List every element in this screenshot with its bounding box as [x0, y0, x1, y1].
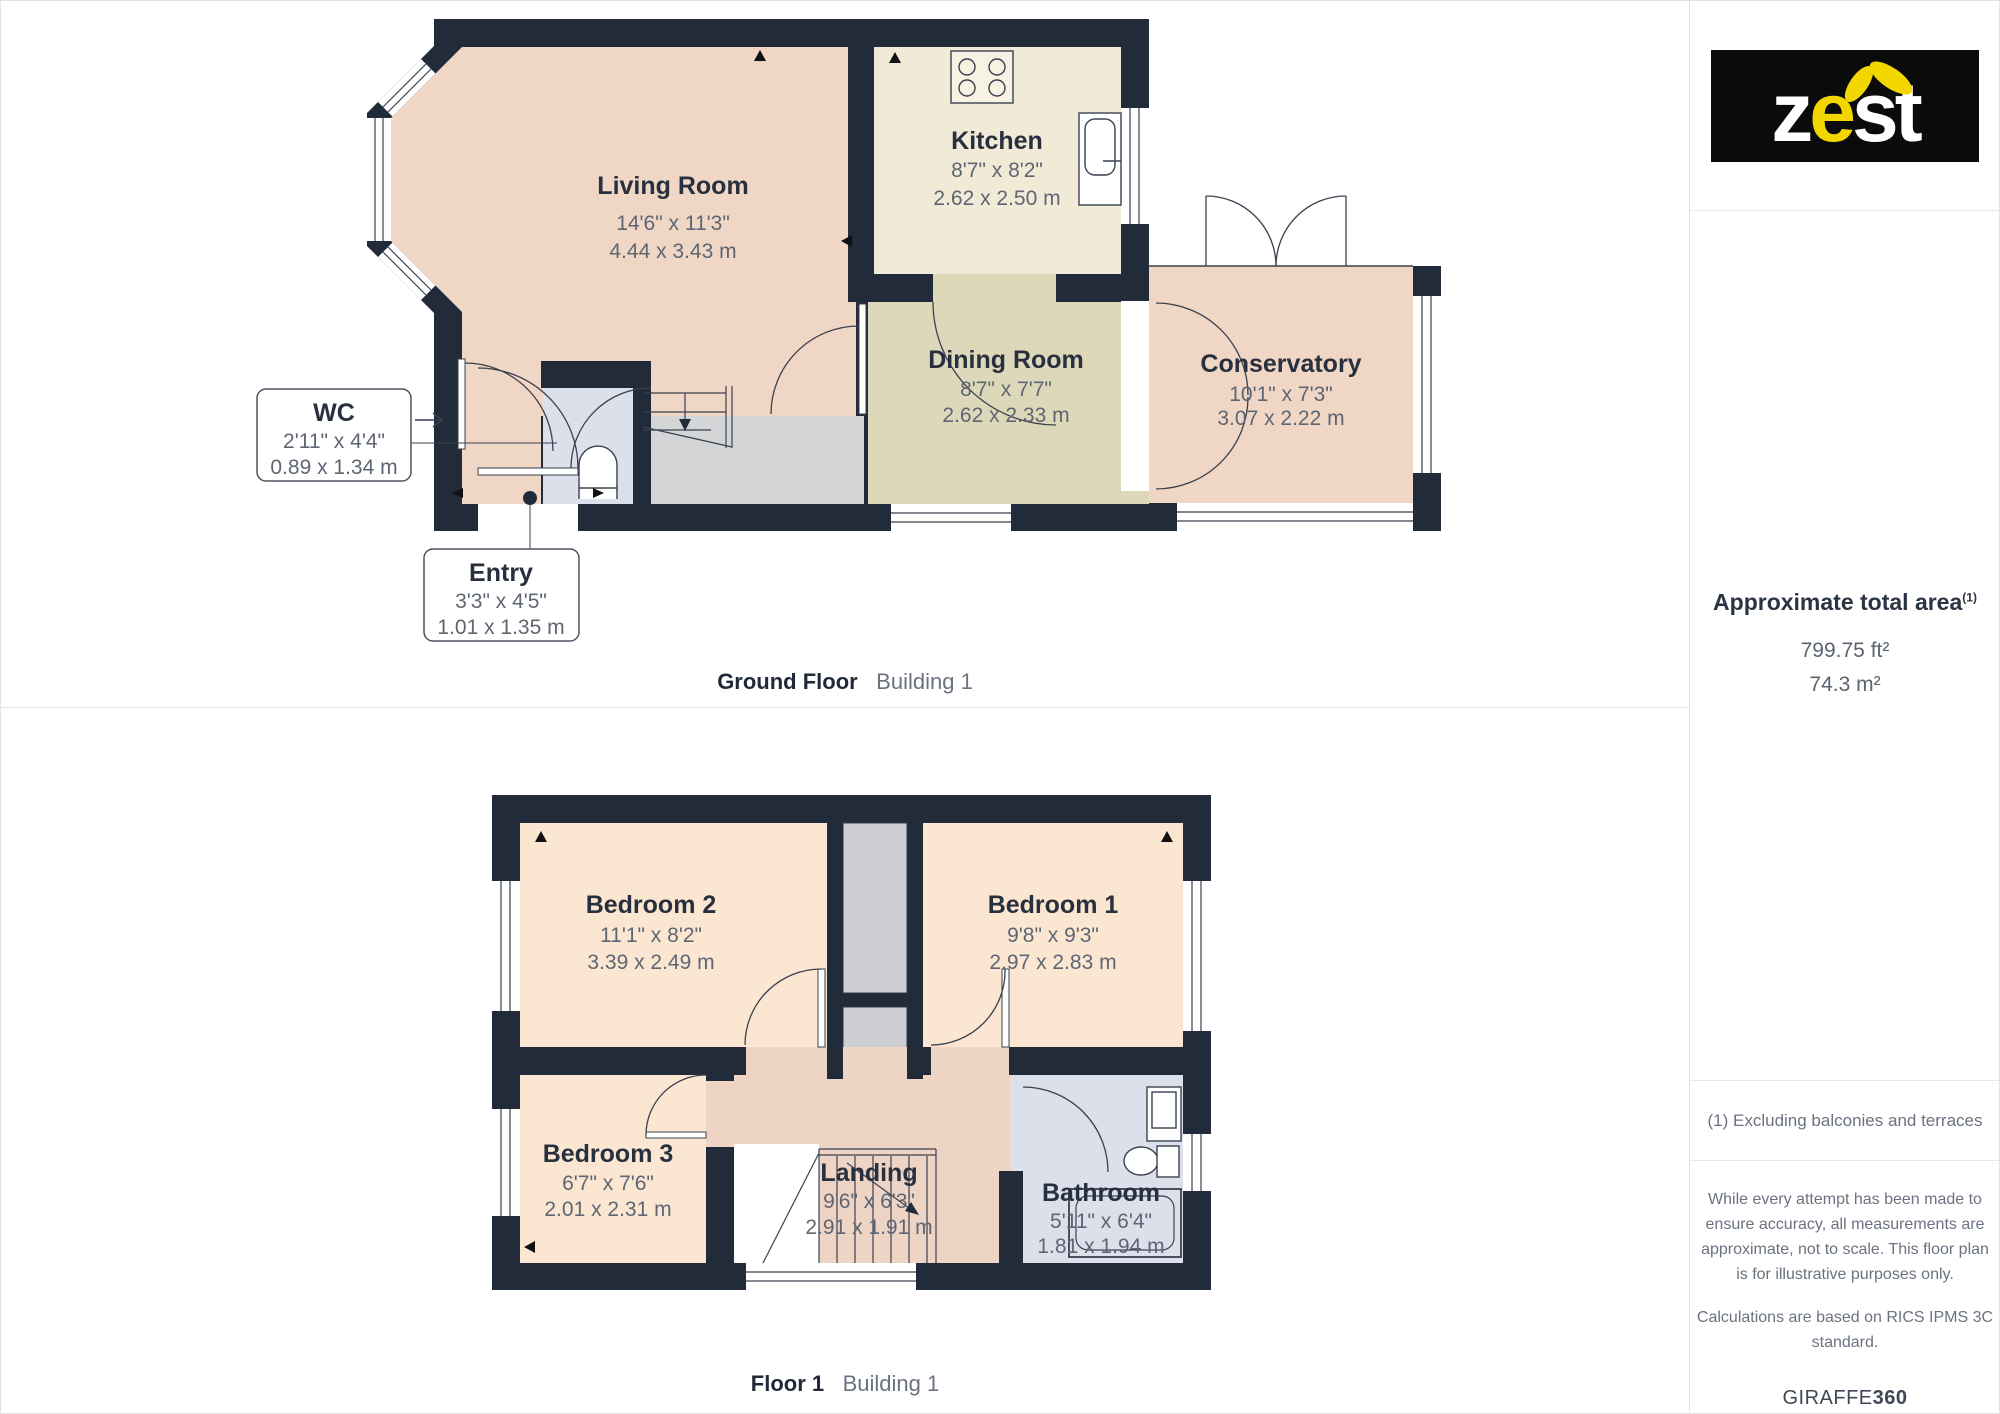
disclaimer-accuracy: While every attempt has been made to ens… — [1694, 1187, 1996, 1287]
ground-floor-caption-title: Ground Floor — [717, 669, 858, 694]
bedroom3-imperial: 6'7" x 7'6" — [562, 1172, 654, 1195]
bedroom1-imperial: 9'8" x 9'3" — [1007, 924, 1099, 947]
landing-metric: 2.91 x 1.91 m — [805, 1216, 932, 1239]
conservatory-door-opening — [1121, 301, 1149, 491]
french-doors — [1206, 196, 1346, 266]
living-room-metric: 4.44 x 3.43 m — [609, 240, 736, 263]
bathroom-label: Bathroom — [1042, 1179, 1160, 1207]
giraffe360-brand: GIRAFFE360 — [1782, 1387, 1907, 1410]
wc-imperial: 2'11" x 4'4" — [283, 430, 385, 453]
ground-floor-caption: Ground Floor Building 1 — [717, 669, 973, 694]
kitchen-bottom-wall-left — [848, 274, 933, 302]
wc-label: WC — [313, 399, 355, 427]
hallway-floor — [643, 416, 864, 504]
area-section: Approximate total area(1) 799.75 ft² 74.… — [1690, 211, 2000, 1081]
info-sidebar: zest Approximate total area(1) 799.75 ft… — [1689, 1, 2000, 1414]
entry-label: Entry — [469, 559, 533, 587]
cupboard-divider — [843, 993, 907, 1007]
bedroom1-window — [1183, 881, 1211, 1031]
dining-floor — [868, 302, 1149, 504]
conservatory-label: Conservatory — [1200, 350, 1361, 378]
bathroom-window — [1183, 1134, 1211, 1191]
dining-room-metric: 2.62 x 2.33 m — [942, 404, 1069, 427]
bathroom-imperial: 5'11" x 6'4" — [1050, 1210, 1152, 1233]
stairwell-void — [734, 1144, 819, 1263]
disclaimer-standard: Calculations are based on RICS IPMS 3C s… — [1694, 1305, 1996, 1355]
kitchen-imperial: 8'7" x 8'2" — [951, 159, 1043, 182]
bedroom2-imperial: 11'1" x 8'2" — [600, 924, 702, 947]
ground-floor-caption-building: Building 1 — [876, 669, 973, 694]
kitchen-label: Kitchen — [951, 127, 1043, 155]
brand-name: GIRAFFE — [1782, 1387, 1872, 1409]
bedroom2-window — [492, 881, 520, 1011]
living-room-label: Living Room — [597, 172, 748, 200]
sink-icon — [1079, 113, 1121, 205]
logo-section: zest — [1690, 1, 2000, 211]
entry-metric: 1.01 x 1.35 m — [437, 616, 564, 639]
bedroom3-window — [492, 1109, 520, 1216]
wc-metric: 0.89 x 1.34 m — [270, 456, 397, 479]
area-title-text: Approximate total area — [1713, 589, 1962, 615]
logo-leaves-icon — [1833, 56, 1923, 102]
cupboard-left-wall — [827, 823, 843, 1079]
floors-divider — [1, 707, 1689, 708]
ground-floor-plan: Living Room 14'6" x 11'3" 4.44 x 3.43 m … — [257, 19, 1441, 694]
bedroom3-metric: 2.01 x 2.31 m — [544, 1198, 671, 1221]
bedroom2-label: Bedroom 2 — [586, 891, 717, 919]
bedroom3-floor — [520, 1075, 706, 1263]
landing-imperial: 9'6" x 6'3" — [823, 1190, 915, 1213]
zest-logo: zest — [1711, 50, 1979, 162]
cupboard-upper — [843, 823, 907, 993]
bedroom1-metric: 2.97 x 2.83 m — [989, 951, 1116, 974]
dining-room-imperial: 8'7" x 7'7" — [960, 378, 1052, 401]
logo-z: z — [1771, 65, 1809, 159]
conservatory-imperial: 10'1" x 7'3" — [1229, 383, 1333, 406]
entry-imperial: 3'3" x 4'5" — [455, 590, 547, 613]
dining-window — [891, 504, 1011, 531]
kitchen-left-wall — [848, 19, 874, 302]
bedroom1-bottom-wall-stub — [923, 1047, 931, 1075]
bedroom1-label: Bedroom 1 — [988, 891, 1119, 919]
bathroom-left-wall — [999, 1171, 1023, 1263]
bathroom-sink-icon — [1147, 1087, 1181, 1141]
dining-room-label: Dining Room — [928, 346, 1084, 374]
area-title: Approximate total area(1) — [1713, 589, 1977, 616]
disclaimer-section: While every attempt has been made to ens… — [1690, 1161, 2000, 1414]
landing-window — [746, 1263, 916, 1290]
first-floor-plan: Bedroom 2 11'1" x 8'2" 3.39 x 2.49 m Bed… — [492, 795, 1211, 1396]
floorplan-page: Living Room 14'6" x 11'3" 4.44 x 3.43 m … — [0, 0, 2000, 1414]
stove-icon — [951, 51, 1013, 103]
area-imperial: 799.75 ft² — [1801, 634, 1890, 668]
living-room-imperial: 14'6" x 11'3" — [616, 212, 730, 235]
cupboard-right-wall — [907, 823, 923, 1079]
plans-area: Living Room 14'6" x 11'3" 4.44 x 3.43 m … — [1, 1, 1689, 1414]
bathroom-top-wall — [1009, 1047, 1183, 1075]
front-door-opening — [478, 504, 578, 531]
bathroom-toilet-icon — [1124, 1146, 1179, 1177]
kitchen-bottom-wall-right — [1056, 274, 1149, 302]
bedroom3-door-opening — [706, 1081, 734, 1147]
wc-right-wall — [633, 388, 651, 504]
kitchen-window — [1121, 108, 1149, 224]
floor1-caption-title: Floor 1 — [751, 1371, 824, 1396]
kitchen-dining-opening — [933, 274, 1056, 302]
floor1-caption: Floor 1 Building 1 — [751, 1371, 939, 1396]
bedroom3-wall-upper — [706, 1047, 734, 1081]
footnote-section: (1) Excluding balconies and terraces — [1690, 1081, 2000, 1161]
wc-top-wall — [541, 361, 651, 388]
footnote-text: (1) Excluding balconies and terraces — [1708, 1111, 1983, 1131]
area-footnote-mark: (1) — [1962, 590, 1977, 604]
bathroom-metric: 1.81 x 1.94 m — [1037, 1235, 1164, 1258]
bedroom2-metric: 3.39 x 2.49 m — [587, 951, 714, 974]
brand-suffix: 360 — [1873, 1387, 1908, 1409]
floor1-caption-building: Building 1 — [843, 1371, 940, 1396]
bedroom3-wall-lower — [706, 1147, 734, 1263]
bedroom3-label: Bedroom 3 — [543, 1140, 674, 1168]
kitchen-metric: 2.62 x 2.50 m — [933, 187, 1060, 210]
area-metric: 74.3 m² — [1809, 668, 1880, 702]
conservatory-metric: 3.07 x 2.22 m — [1217, 407, 1344, 430]
landing-label: Landing — [820, 1159, 917, 1187]
